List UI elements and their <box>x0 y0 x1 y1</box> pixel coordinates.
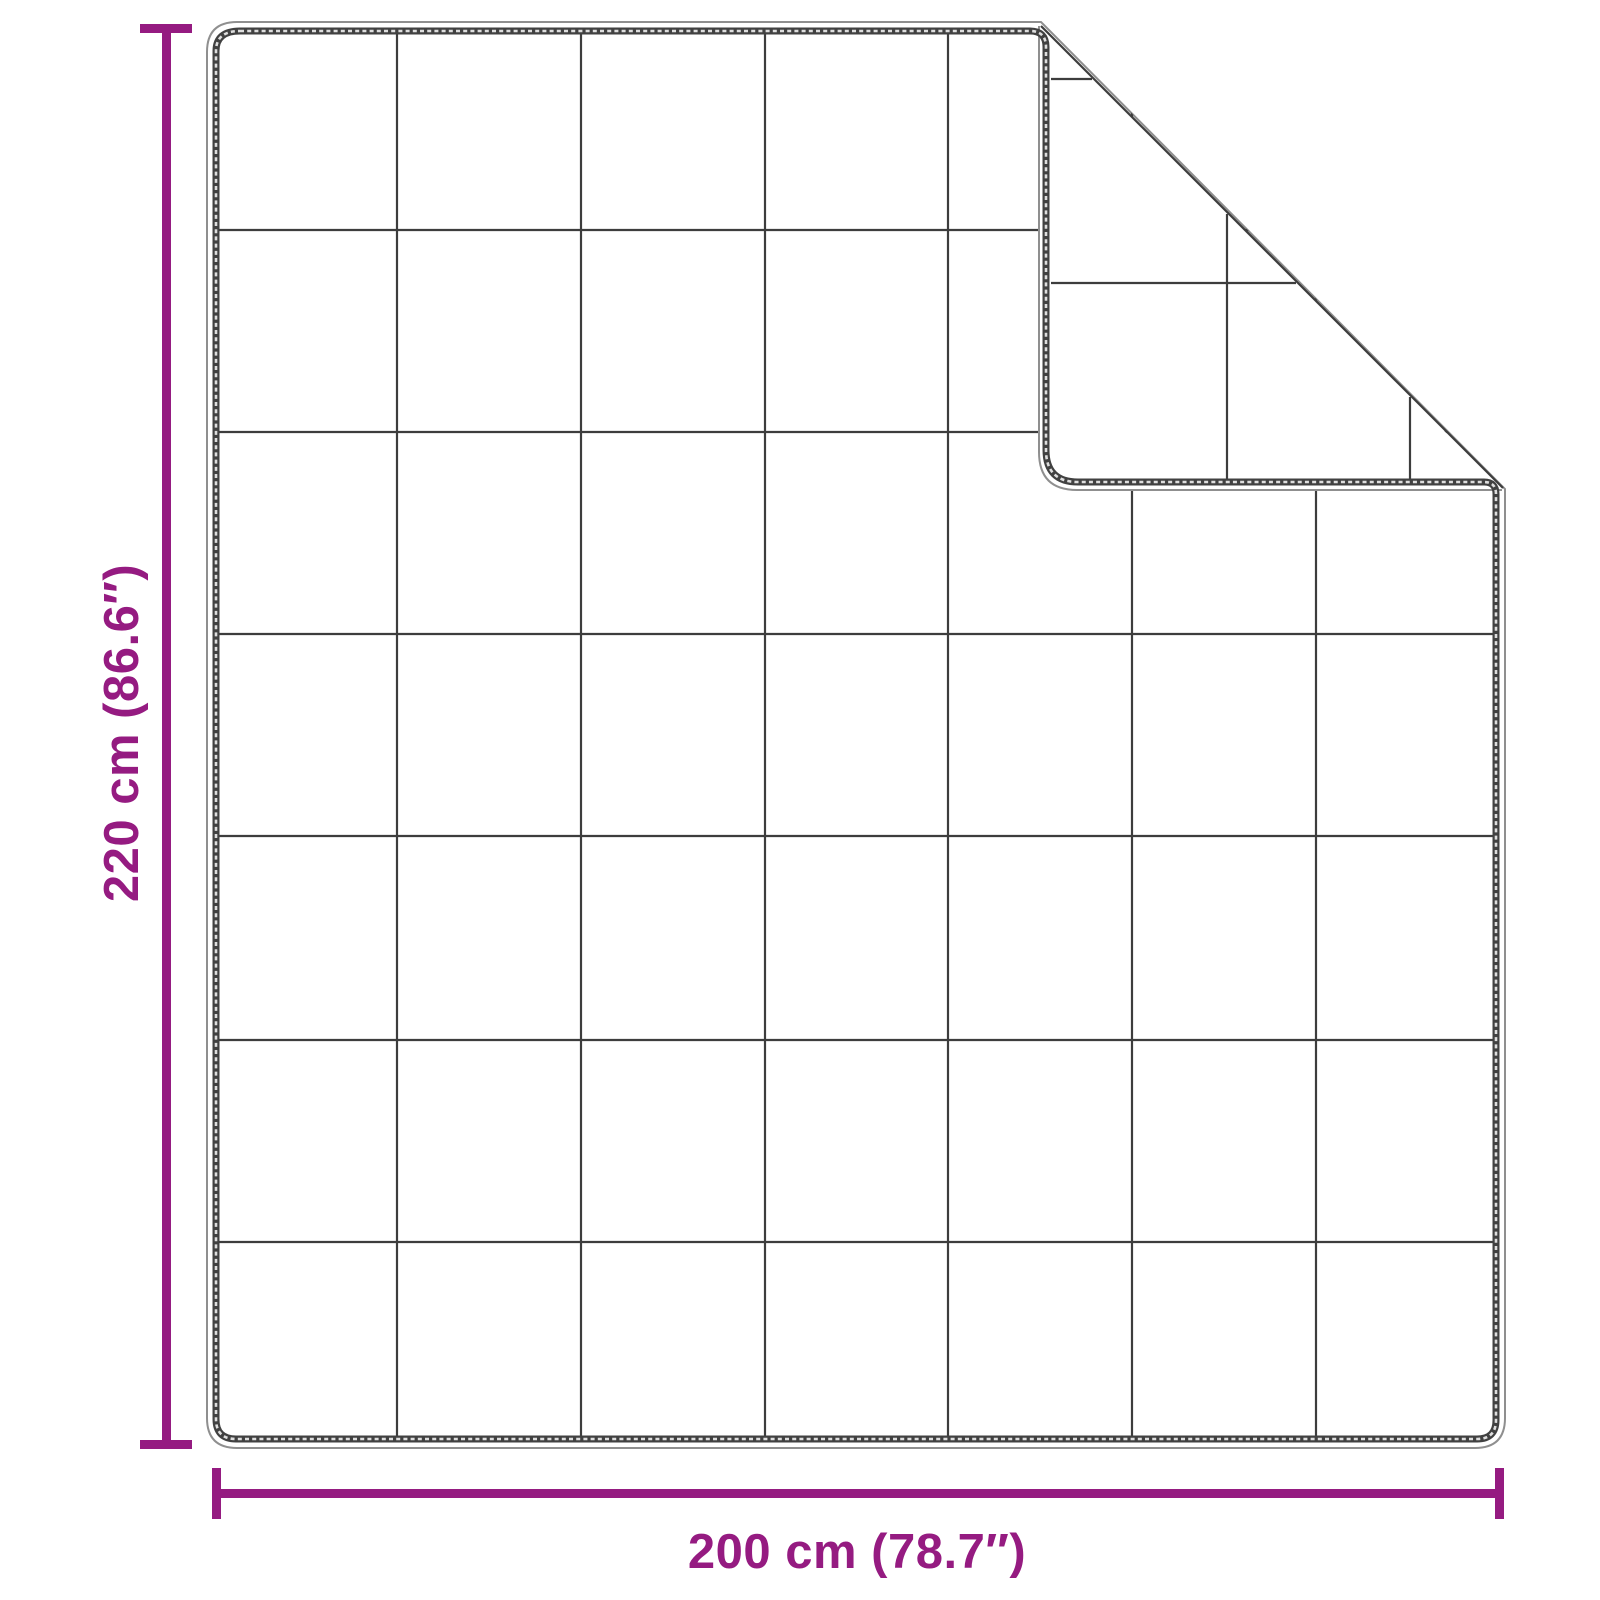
height-dimension: 220 cm (86.6″) <box>95 24 192 1449</box>
width-dimension-cap-left <box>212 1468 221 1519</box>
blanket-dimension-diagram: 220 cm (86.6″) 200 cm (78.7″) <box>0 0 1600 1600</box>
width-dimension-label: 200 cm (78.7″) <box>688 1525 1026 1579</box>
blanket-outline <box>207 22 1505 1448</box>
height-dimension-cap-bottom <box>140 1440 192 1449</box>
width-dimension-line <box>216 1489 1500 1498</box>
width-dimension: 200 cm (78.7″) <box>212 1468 1504 1579</box>
height-dimension-cap-top <box>140 24 192 33</box>
width-dimension-cap-right <box>1495 1468 1504 1519</box>
stitch-texture <box>216 31 1496 1439</box>
height-dimension-line <box>162 26 171 1445</box>
quilt-grid <box>217 32 1496 1438</box>
diagram-canvas: 220 cm (86.6″) 200 cm (78.7″) <box>0 0 1600 1600</box>
stitched-border <box>216 31 1496 1439</box>
height-dimension-label: 220 cm (86.6″) <box>95 564 149 902</box>
